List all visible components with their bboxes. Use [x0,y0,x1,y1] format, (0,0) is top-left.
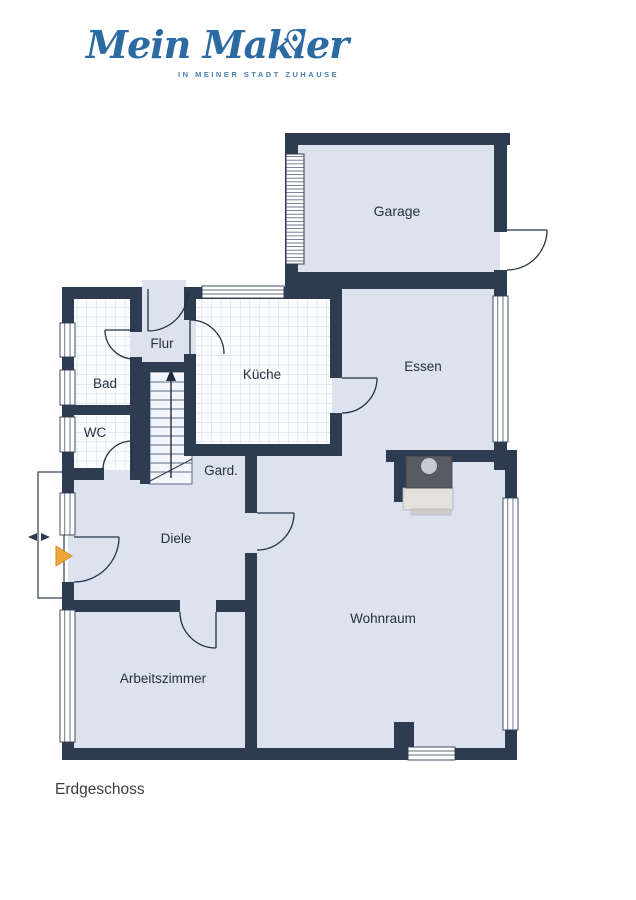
floor-plan: Garage Flur Bad WC Küche Essen Gard. Die… [0,0,636,900]
room-label-flur: Flur [150,336,174,351]
room-label-essen: Essen [404,359,442,374]
floor-plan-page: Mein Makler IN MEINER STADT ZUHAUSE [0,0,636,900]
window [60,610,75,742]
window [493,296,508,442]
window [408,747,455,760]
room-label-wohnraum: Wohnraum [350,611,416,626]
room-label-bad: Bad [93,376,117,391]
room-label-diele: Diele [161,531,192,546]
room-label-garage: Garage [374,203,421,219]
window [60,417,75,452]
room-label-arbeitszimmer: Arbeitszimmer [120,671,207,686]
window [202,286,284,298]
entrance-porch [28,472,64,598]
room-label-kueche: Küche [243,367,281,382]
garage-roller-door [286,154,304,264]
fireplace-flue [421,458,437,474]
door-arc [507,230,547,270]
window [60,323,75,357]
room-label-garderobe: Gard. [204,463,238,478]
window [60,370,75,405]
room-label-wc: WC [84,425,107,440]
window [503,498,518,730]
dimension-arrow-left [28,533,37,541]
fireplace [403,456,453,515]
window [60,493,75,535]
floor-title: Erdgeschoss [55,781,145,799]
